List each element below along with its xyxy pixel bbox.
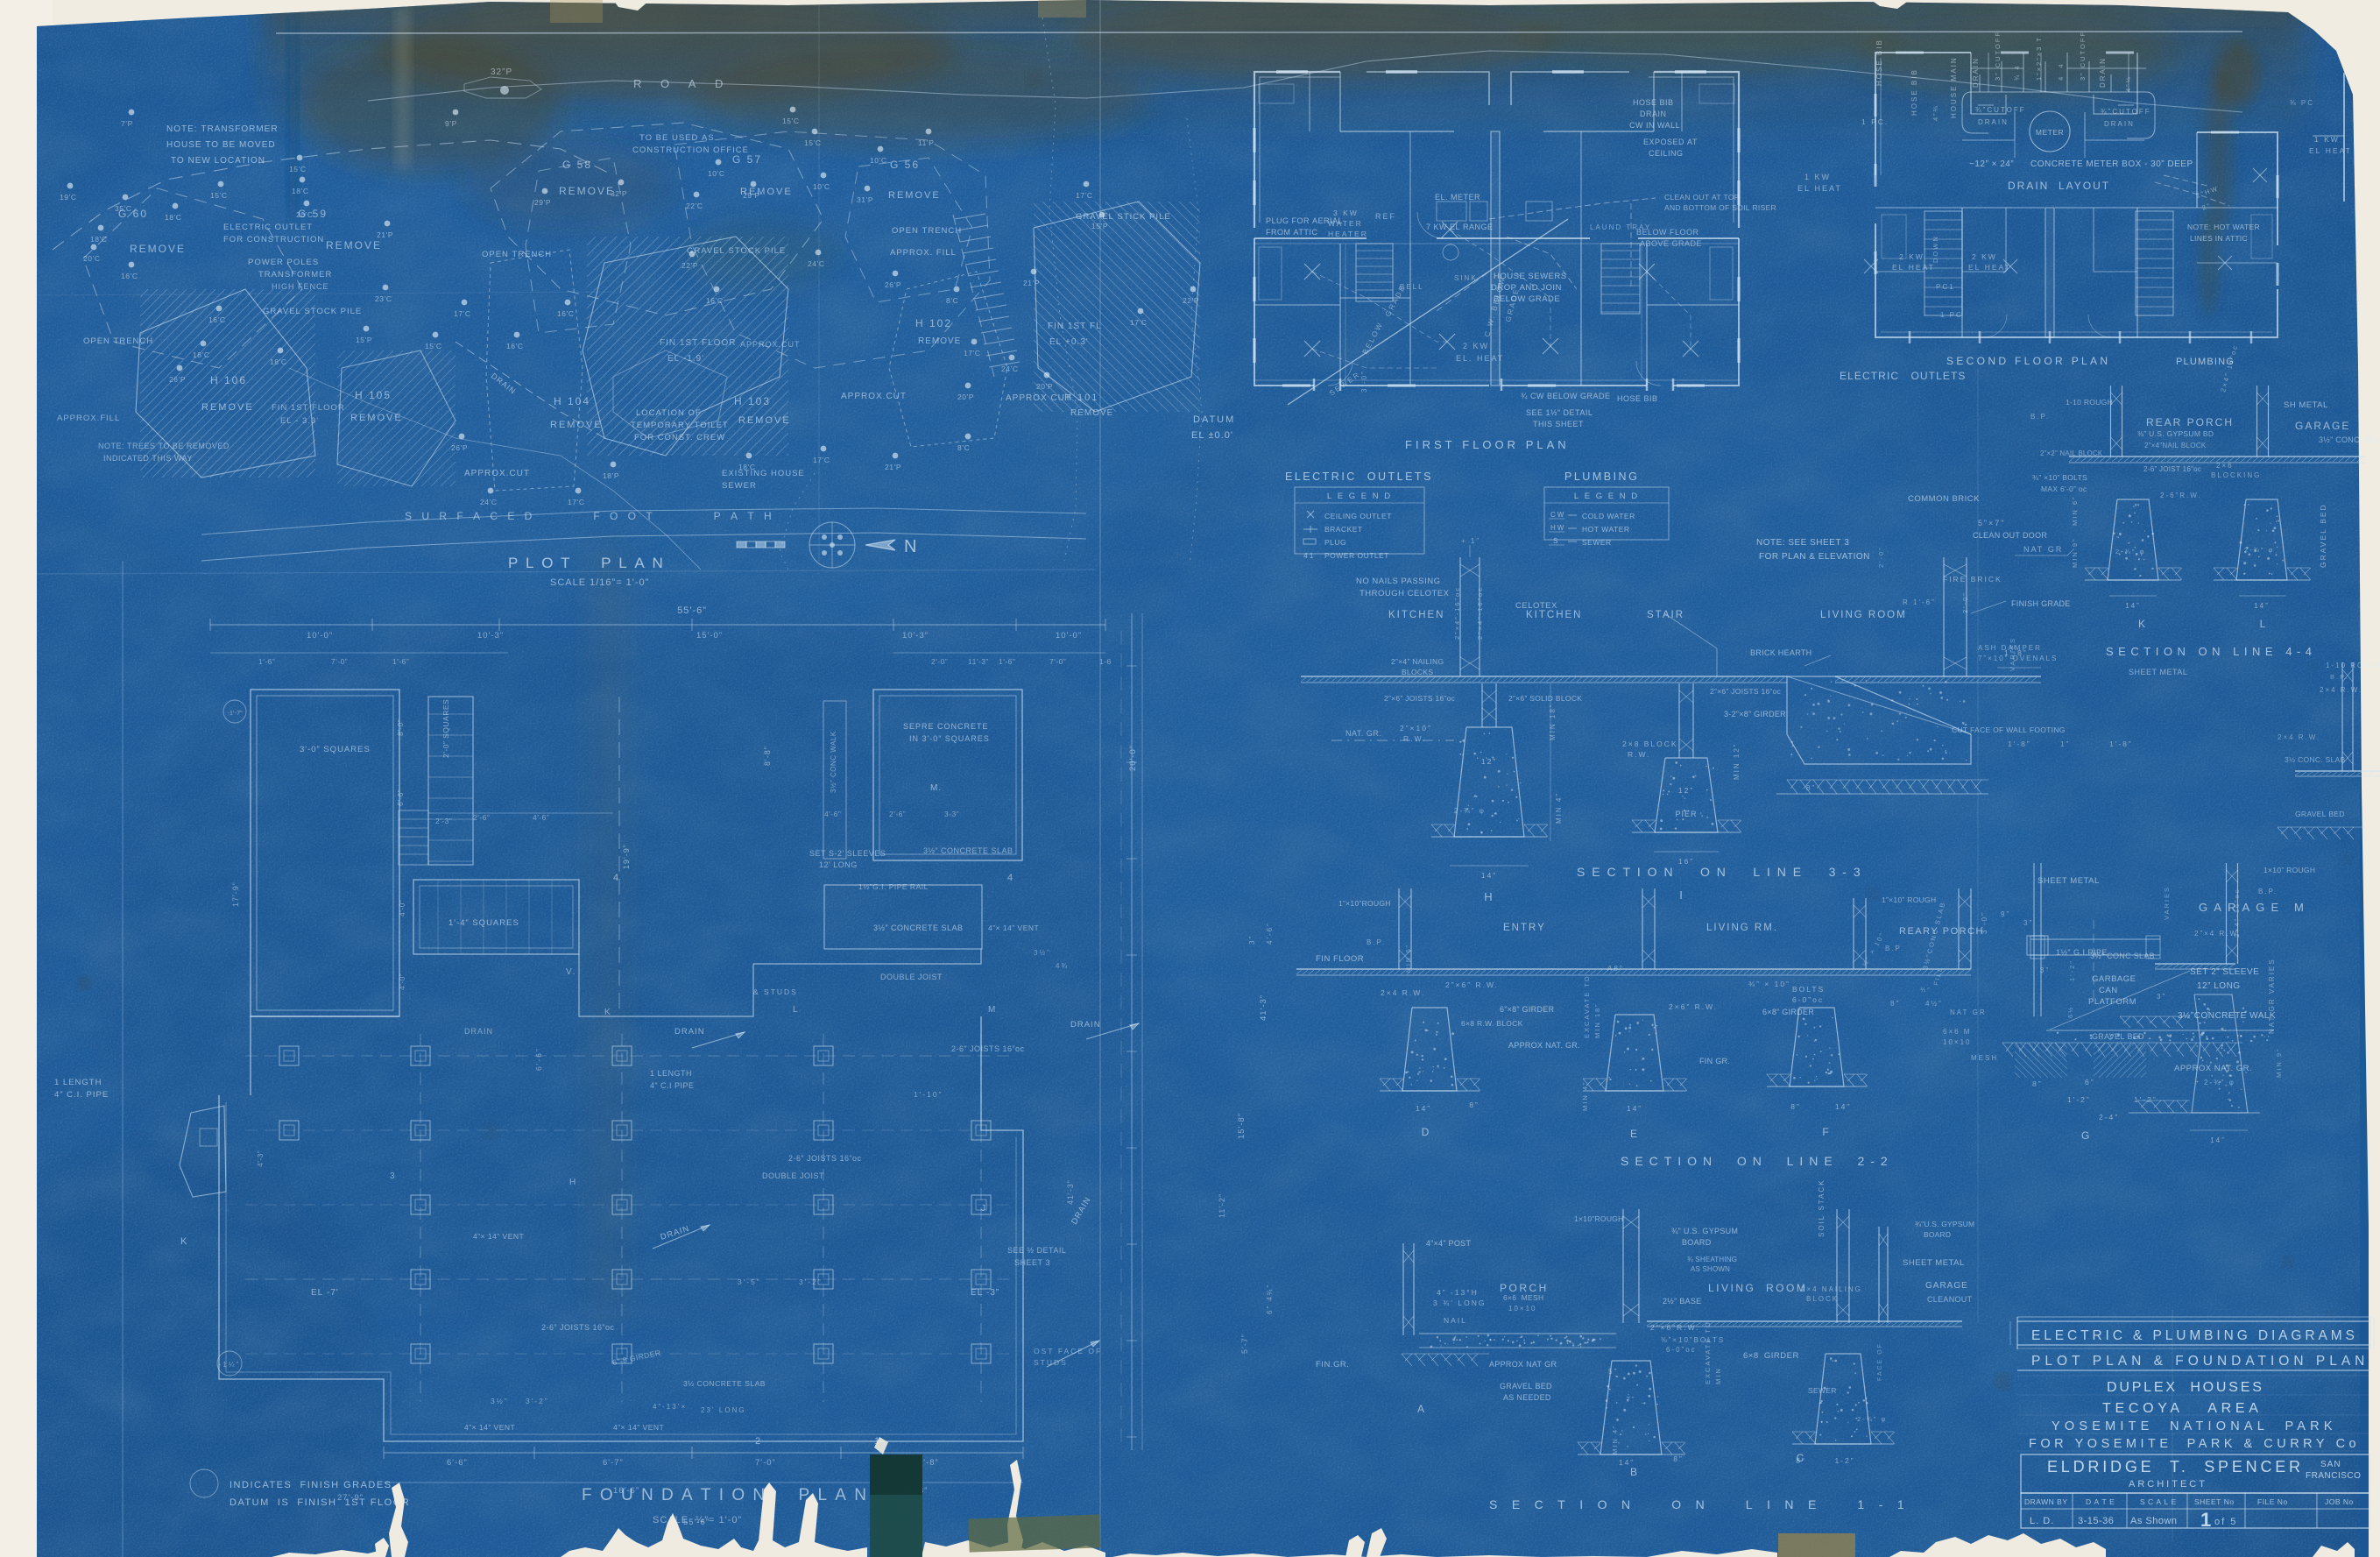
svg-text:3'-0”: 3'-0” [1360,370,1368,393]
svg-text:6-0”oc: 6-0”oc [1666,1346,1697,1354]
svg-text:2-6” JOISTS 16”oc: 2-6” JOISTS 16”oc [788,1154,862,1163]
svg-text:19'-9”: 19'-9” [622,844,631,869]
svg-text:14”: 14” [1416,1104,1431,1113]
svg-text:1 LENGTH: 1 LENGTH [54,1078,102,1087]
svg-text:BRACKET: BRACKET [1324,525,1363,534]
svg-text:ELECTRIC OUTLETS: ELECTRIC OUTLETS [1840,370,1967,382]
svg-text:41'-3”: 41'-3” [1066,1179,1075,1205]
svg-text:3½” CONCRETE SLAB: 3½” CONCRETE SLAB [873,924,964,932]
svg-text:P L O T P L A N: P L O T P L A N [508,555,665,571]
svg-text:S C A L E: S C A L E [2140,1497,2177,1506]
svg-text:15’C: 15’C [289,165,306,173]
svg-text:20’P: 20’P [1036,382,1053,391]
svg-text:S E C T I O N O N L I: S E C T I O N O N L I N E 2 - 2 [1621,1154,1889,1168]
svg-text:COLD WATER: COLD WATER [1582,512,1635,520]
svg-text:BOLTS: BOLTS [1792,985,1825,994]
svg-text:15'-8”: 15'-8” [1237,1113,1246,1139]
svg-text:17’C: 17’C [813,456,830,464]
svg-text:FINISH GRADE: FINISH GRADE [2011,599,2071,608]
svg-text:3'-5”: 3'-5” [738,1277,761,1286]
svg-text:REMOVE: REMOVE [888,190,941,201]
svg-text:23’ LONG: 23’ LONG [701,1406,746,1414]
svg-text:G A R A G E M: G A R A G E M [2199,901,2306,914]
svg-text:2×6: 2×6 [2216,462,2234,470]
svg-text:PORCH: PORCH [1500,1282,1549,1294]
svg-text:SHEET METAL: SHEET METAL [1903,1258,1965,1268]
svg-text:41: 41 [1303,551,1315,560]
svg-text:F I R S T F L O O R P L A: F I R S T F L O O R P L A N [1405,438,1566,451]
svg-text:2 KW: 2 KW [1463,342,1489,350]
svg-text:3½ CONC. SLAB: 3½ CONC. SLAB [2285,755,2346,764]
svg-text:2×8 BLOCK: 2×8 BLOCK [1622,740,1678,748]
svg-text:1 PC.: 1 PC. [1861,117,1889,126]
svg-text:6-0”oc: 6-0”oc [1792,995,1824,1004]
svg-text:CONSTRUCTION OFFICE: CONSTRUCTION OFFICE [632,145,749,155]
svg-text:41'-3”: 41'-3” [1259,994,1268,1021]
svg-text:JOB No: JOB No [2325,1497,2354,1506]
svg-text:¾ PC: ¾ PC [2290,99,2314,107]
svg-text:FRANCISCO: FRANCISCO [2306,1471,2361,1481]
svg-text:15’P: 15’P [356,336,372,344]
svg-text:18’C: 18’C [193,350,209,359]
svg-text:SINK: SINK [1454,274,1478,282]
svg-text:GARBAGE: GARBAGE [2092,974,2136,984]
svg-text:APPROX.FILL: APPROX.FILL [57,414,120,423]
svg-text:7'-0”: 7'-0” [1049,657,1066,666]
svg-text:29’P: 29’P [534,198,551,207]
svg-text:1'-8”: 1'-8” [2004,648,2028,657]
svg-text:EL. METER: EL. METER [1435,193,1480,202]
svg-text:APPROX. FILL: APPROX. FILL [890,248,957,258]
svg-text:6'-6”: 6'-6” [447,1458,468,1468]
svg-text:6'-6”: 6'-6” [396,789,405,806]
svg-text:SEPRE CONCRETE: SEPRE CONCRETE [903,722,989,731]
svg-text:1'-2”: 1'-2” [2068,959,2076,981]
svg-text:A8°: A8° [1607,965,1624,973]
svg-text:14”: 14” [1835,1102,1851,1111]
svg-text:4”×4” POST: 4”×4” POST [1426,1239,1471,1248]
svg-text:S E C T I O N O N L I N E: S E C T I O N O N L I N E 4 - 4 [2106,645,2313,658]
svg-text:10’C: 10’C [708,169,724,178]
svg-text:M.: M. [930,783,942,793]
svg-text:2”×6”R.W.: 2”×6”R.W. [1650,1323,1700,1332]
svg-text:BLOCK: BLOCK [1806,1295,1839,1303]
svg-text:10'-3”: 10'-3” [902,631,929,640]
svg-text:26’P: 26’P [885,280,901,289]
svg-text:MIN 6”: MIN 6” [2071,496,2079,527]
svg-text:1×10”ROUGH: 1×10”ROUGH [1574,1214,1624,1223]
svg-text:H 102: H 102 [915,317,952,329]
svg-text:NO NAILS PASSING: NO NAILS PASSING [1356,577,1441,586]
svg-text:GRAVEL BED: GRAVEL BED [2319,503,2327,568]
svg-text:DRAIN: DRAIN [1972,57,1980,88]
svg-text:2'-6”: 2'-6” [473,813,490,822]
svg-text:19’C: 19’C [60,193,76,202]
svg-text:EL -3”: EL -3” [971,1288,999,1298]
svg-text:FACE OF: FACE OF [1877,1342,1883,1381]
svg-text:3 ¾’ LONG: 3 ¾’ LONG [1433,1299,1487,1307]
svg-text:DRAIN: DRAIN [2104,120,2135,128]
svg-text:EL - 3.3': EL - 3.3' [280,416,319,426]
svg-text:EL ±0.0': EL ±0.0' [1191,430,1233,441]
svg-text:EXPOSED AT: EXPOSED AT [1643,138,1698,146]
svg-text:F O U N D A T I O N P L A: F O U N D A T I O N P L A N [582,1486,868,1504]
svg-text:10'-0”: 10'-0” [307,631,333,640]
svg-text:1”×2”×3 T: 1”×2”×3 T [2035,36,2043,81]
svg-text:15’C: 15’C [425,342,441,350]
svg-text:6×6 MESH: 6×6 MESH [1503,1293,1543,1302]
svg-text:2×4 R.W.: 2×4 R.W. [2278,733,2320,741]
svg-text:2”×6” SOLID BLOCK: 2”×6” SOLID BLOCK [1508,694,1582,703]
svg-text:R O A D: R O A D [633,77,731,90]
svg-text:8’C: 8’C [946,296,958,305]
svg-text:EL HEAT: EL HEAT [1892,263,1935,272]
svg-text:12”: 12” [1678,786,1694,795]
svg-text:24’C: 24’C [480,498,497,506]
svg-text:FROM ATTIC: FROM ATTIC [1266,228,1317,237]
svg-text:D A T E: D A T E [2086,1497,2115,1506]
svg-text:PLOT PLAN & FOUNDATION PLAN: PLOT PLAN & FOUNDATION PLAN [2031,1354,2369,1369]
svg-text:SET S-2' SLEEVES: SET S-2' SLEEVES [809,849,886,858]
svg-text:7'-0”: 7'-0” [755,1458,776,1468]
svg-text:3½” CONC. SLAB: 3½” CONC. SLAB [2319,435,2380,444]
svg-text:GRAVEL STOCK PILE: GRAVEL STOCK PILE [687,246,786,256]
svg-text:GARAGE: GARAGE [1925,1281,1968,1291]
svg-text:3½” CONC WALK: 3½” CONC WALK [830,731,837,793]
svg-text:12”: 12” [1481,757,1497,766]
svg-text:AND BOTTOM OF SOIL RISER: AND BOTTOM OF SOIL RISER [1664,203,1776,212]
svg-text:MIN 4”: MIN 4” [1555,792,1563,824]
svg-text:CAN: CAN [2099,986,2118,995]
svg-text:3½”: 3½” [491,1397,509,1405]
svg-text:8'-8”: 8'-8” [763,746,772,766]
svg-text:2”×6” JOISTS 16”oc: 2”×6” JOISTS 16”oc [1710,687,1782,696]
svg-text:APPROX NAT. GR.: APPROX NAT. GR. [2174,1064,2252,1073]
svg-text:REMOVE: REMOVE [350,413,403,423]
svg-text:LOCATION OF: LOCATION OF [636,408,702,418]
svg-text:DRAWN BY: DRAWN BY [2024,1497,2068,1506]
svg-text:15'-0”: 15'-0” [696,631,723,640]
svg-text:ELECTRIC & PLUMBING DIAGRAMS: ELECTRIC & PLUMBING DIAGRAMS [2031,1328,2358,1343]
svg-text:of 5: of 5 [2214,1517,2237,1527]
svg-text:MIN: MIN [1714,1367,1722,1384]
svg-text:LIVING RM.: LIVING RM. [1706,923,1778,933]
svg-text:2'-0” SQUARES: 2'-0” SQUARES [441,699,450,758]
svg-text:2 KW: 2 KW [1899,252,1924,261]
svg-text:DRAIN: DRAIN [2099,57,2107,88]
svg-text:GRAVEL BED: GRAVEL BED [2092,1032,2144,1041]
svg-text:7”: 7” [1626,1396,1635,1404]
svg-text:CLEANOUT: CLEANOUT [1927,1295,1973,1304]
svg-text:PLUMBING: PLUMBING [1564,471,1639,483]
svg-text:B: B [1630,1466,1639,1478]
svg-text:32”P: 32”P [491,67,512,77]
svg-text:6” 4¾”: 6” 4¾” [1266,1284,1274,1314]
svg-text:HOUSE MAIN: HOUSE MAIN [1950,56,1958,118]
svg-text:SH METAL: SH METAL [2284,400,2328,410]
svg-text:MAX 6'-0” oc: MAX 6'-0” oc [2041,485,2087,493]
svg-text:SEE 1½” DETAIL: SEE 1½” DETAIL [1526,408,1593,417]
svg-text:DRAIN: DRAIN [1978,118,2009,126]
svg-text:G 57: G 57 [732,153,762,166]
svg-text:SCALE ¼”= 1'-0”: SCALE ¼”= 1'-0” [653,1515,742,1525]
svg-text:APPROX.CUT: APPROX.CUT [841,392,907,401]
svg-text:REMOVE: REMOVE [559,185,615,197]
svg-text:4”× 14” VENT: 4”× 14” VENT [473,1232,524,1241]
svg-text:4” -13°H: 4” -13°H [1437,1288,1479,1297]
svg-text:14”: 14” [1481,871,1497,880]
svg-text:2”×4 R.W.: 2”×4 R.W. [2194,930,2242,938]
svg-text:C: C [1797,1452,1806,1464]
svg-text:LINES IN ATTIC: LINES IN ATTIC [2190,234,2248,243]
svg-text:H 104: H 104 [554,395,590,407]
svg-text:H 106: H 106 [210,374,247,386]
svg-text:6”×8” GIRDER: 6”×8” GIRDER [1500,1005,1555,1014]
svg-text:EL HEAT: EL HEAT [1797,184,1842,193]
svg-text:GRAVEL BED: GRAVEL BED [2295,810,2345,818]
svg-text:LIVING ROOM: LIVING ROOM [1708,1282,1807,1294]
svg-text:REF: REF [1375,212,1396,221]
svg-text:18’C: 18’C [270,357,286,366]
svg-text:NAT GR VARIES: NAT GR VARIES [2268,958,2276,1034]
svg-text:⅜” U.S. GYPSUM BD: ⅜” U.S. GYPSUM BD [2137,429,2214,438]
svg-text:17’C: 17’C [1076,191,1092,200]
svg-text:1-2”: 1-2” [1834,1456,1854,1465]
svg-text:2-¾” φ: 2-¾” φ [2244,546,2274,554]
svg-text:2”×4”-16”oc: 2”×4”-16”oc [1476,586,1484,640]
svg-text:21’P: 21’P [885,463,901,471]
svg-text:17'-9”: 17'-9” [231,881,240,907]
svg-text:17’C: 17’C [1130,318,1147,327]
svg-text:MIN 9”: MIN 9” [2071,538,2079,569]
svg-text:SAN: SAN [2320,1460,2341,1469]
svg-text:REMOVE: REMOVE [201,402,254,413]
svg-text:EL. HEAT: EL. HEAT [1456,354,1504,363]
svg-text:3” CUTOFF: 3” CUTOFF [1994,31,2002,81]
svg-text:G 58: G 58 [562,159,592,171]
svg-text:21’P: 21’P [377,230,393,239]
svg-text:2-¾” φ: 2-¾” φ [2204,1079,2235,1086]
svg-text:4: 4 [1007,873,1014,883]
svg-text:14”: 14” [2125,602,2141,610]
svg-text:¾”: ¾” [1920,986,1932,994]
svg-text:EXCAVATE TO: EXCAVATE TO [1704,1320,1712,1384]
svg-text:+ 1”: + 1” [1461,537,1480,545]
svg-text:1'-10”: 1'-10” [914,1090,943,1099]
svg-text:APPROX NAT GR: APPROX NAT GR [1489,1360,1557,1369]
svg-text:4: 4 [613,873,620,883]
svg-text:H: H [569,1178,577,1187]
svg-text:DATUM IS FINISH 1ST FLOOR: DATUM IS FINISH 1ST FLOOR [230,1497,410,1508]
svg-text:8”: 8” [1673,1454,1684,1463]
svg-text:9”: 9” [2001,910,2010,918]
svg-text:1½”G.I. PIPE RAIL: 1½”G.I. PIPE RAIL [858,882,929,891]
svg-text:HOSE BIB: HOSE BIB [1617,394,1658,403]
svg-text:B.P.: B.P. [2258,888,2278,895]
svg-text:12' LONG: 12' LONG [819,860,858,869]
svg-text:3”: 3” [1248,935,1256,945]
svg-text:10'-0”: 10'-0” [1056,631,1082,640]
svg-text:THROUGH CELOTEX: THROUGH CELOTEX [1359,589,1450,598]
svg-text:MIN 12”: MIN 12” [1733,743,1741,780]
svg-text:R 1'-6”: R 1'-6” [1903,598,1936,606]
svg-text:4'-3”: 4'-3” [256,1150,265,1167]
svg-text:TRANSFORMER: TRANSFORMER [258,270,332,280]
svg-text:5”: 5” [1608,1368,1618,1376]
svg-text:G: G [2081,1129,2091,1142]
svg-text:1-10 ROUGH: 1-10 ROUGH [2066,398,2113,407]
svg-text:B.P.: B.P. [1367,938,1386,946]
svg-text:S E C T I O N O N L I N: S E C T I O N O N L I N E 1 - 1 [1489,1497,1910,1511]
svg-text:V.: V. [566,967,577,977]
svg-text:1'-8”: 1'-8” [2109,740,2133,748]
svg-text:EL -1.9': EL -1.9' [667,354,704,364]
svg-text:18’P: 18’P [603,471,619,480]
svg-text:6×6 M: 6×6 M [1943,1028,1971,1036]
svg-text:4'-6”: 4'-6” [1266,922,1274,945]
svg-text:4”⅔: 4”⅔ [1932,104,1939,121]
svg-text:REMOVE: REMOVE [918,336,961,346]
svg-text:SHEET METAL: SHEET METAL [2129,668,2187,676]
svg-text:WATER: WATER [1328,219,1363,228]
svg-text:BLOCKING: BLOCKING [2211,471,2261,479]
svg-text:3-3”: 3-3” [944,810,959,818]
svg-text:4”-13’×: 4”-13’× [653,1403,687,1411]
svg-text:FOR CONSTRUCTION: FOR CONSTRUCTION [223,235,324,244]
svg-text:3'-0” SQUARES: 3'-0” SQUARES [300,745,371,754]
svg-text:18’C: 18’C [738,463,755,471]
svg-text:BRICK HEARTH: BRICK HEARTH [1750,648,1811,657]
svg-text:DUPLEX HOUSES: DUPLEX HOUSES [2107,1380,2264,1395]
svg-text:CEILING: CEILING [1649,149,1684,158]
svg-text:YOSEMITE NATIONAL PARK: YOSEMITE NATIONAL PARK [2052,1419,2337,1433]
svg-text:4”× 14” VENT: 4”× 14” VENT [464,1423,515,1432]
svg-text:ARCHITECT: ARCHITECT [2129,1479,2207,1490]
svg-text:2×4 R.W.: 2×4 R.W. [1381,988,1425,997]
svg-text:8”: 8” [1790,1102,1801,1111]
svg-text:OST FACE OF: OST FACE OF [1034,1347,1102,1355]
svg-text:NOTE: TREES TO BE REMOVED: NOTE: TREES TO BE REMOVED [98,442,230,450]
svg-text:3½”: 3½” [1034,949,1051,957]
svg-text:SHEET METAL: SHEET METAL [2037,876,2100,886]
svg-text:3½” CONCRETE SLAB: 3½” CONCRETE SLAB [923,846,1013,855]
svg-text:OPEN TRENCH: OPEN TRENCH [482,250,552,259]
svg-text:TEMPORARY TOILET: TEMPORARY TOILET [631,421,729,430]
svg-text:TECOYA AREA: TECOYA AREA [2102,1401,2263,1416]
svg-text:L E G E N D: L E G E N D [1574,492,1639,501]
svg-text:G 56: G 56 [890,159,920,171]
svg-text:⅜”×10”BOLTS: ⅜”×10”BOLTS [1661,1336,1725,1344]
svg-text:11'-2”: 11'-2” [1218,1193,1226,1218]
svg-text:EL HEAT: EL HEAT [2309,146,2352,155]
svg-text:16’C: 16’C [506,342,523,350]
svg-text:NAT GR: NAT GR [2023,545,2063,554]
svg-text:1”: 1” [2060,740,2070,748]
svg-text:2-¾” φ: 2-¾” φ [1857,1415,1887,1423]
svg-text:16’C: 16’C [121,272,138,280]
svg-text:I: I [1679,888,1684,902]
svg-text:VARIES: VARIES [2163,886,2171,920]
svg-text:14”: 14” [1627,1104,1642,1113]
svg-text:SEE ½ DETAIL: SEE ½ DETAIL [1007,1246,1066,1255]
svg-text:FIN 1ST FLOOR: FIN 1ST FLOOR [272,403,345,413]
svg-text:18’C: 18’C [292,187,308,195]
svg-text:3'-2”: 3'-2” [526,1397,549,1405]
svg-text:1'-8”: 1'-8” [2008,740,2031,748]
svg-text:1'-4” SQUARES: 1'-4” SQUARES [448,918,519,928]
svg-text:EL -7': EL -7' [311,1288,339,1298]
svg-text:S E C T I O N O N L I: S E C T I O N O N L I N E 3 - 3 [1577,865,1862,879]
svg-text:S E C O N D F L O O R P L: S E C O N D F L O O R P L A N [1946,355,2108,367]
svg-text:14”: 14” [2254,602,2270,610]
svg-text:BOARD: BOARD [1682,1238,1712,1247]
svg-text:2 KW: 2 KW [1972,252,1997,261]
svg-text:4” C.I. PIPE: 4” C.I. PIPE [54,1090,109,1100]
svg-text:F: F [1822,1126,1830,1138]
svg-text:S: S [1553,537,1559,545]
svg-text:6×8 GIRDER: 6×8 GIRDER [1743,1351,1799,1361]
svg-text:DRAIN: DRAIN [1640,110,1667,118]
svg-text:10'-3”: 10'-3” [477,631,504,640]
svg-text:11'-3”: 11'-3” [968,657,989,666]
svg-text:EL HEAT: EL HEAT [1968,263,2011,272]
svg-text:DOUBLE JOIST: DOUBLE JOIST [762,1171,824,1180]
svg-text:8’C: 8’C [957,443,970,452]
svg-text:4”× 14” VENT: 4”× 14” VENT [988,924,1039,932]
svg-text:24’C: 24’C [808,259,824,268]
svg-text:CUT FACE OF WALL FOOTING: CUT FACE OF WALL FOOTING [1952,725,2066,734]
svg-text:BOARD: BOARD [1924,1230,1951,1239]
svg-text:1-6: 1-6 [1099,657,1112,666]
svg-text:2×4 NAILING: 2×4 NAILING [1801,1285,1862,1293]
svg-text:DATUM: DATUM [1193,414,1235,425]
svg-text:4'-6”: 4'-6” [824,810,841,818]
svg-text:22’P: 22’P [1183,296,1199,305]
svg-text:2-6” JOISTS 16”oc: 2-6” JOISTS 16”oc [541,1323,615,1332]
svg-text:16’C: 16’C [557,309,574,318]
svg-text:R.W.: R.W. [1403,734,1426,743]
svg-text:FIN GR.: FIN GR. [1699,1057,1730,1065]
svg-text:18’C: 18’C [165,213,181,222]
svg-text:1 LENGTH: 1 LENGTH [650,1069,692,1078]
svg-text:M: M [988,1005,997,1015]
svg-text:2”×2” NAIL BLOCK: 2”×2” NAIL BLOCK [2040,449,2103,457]
svg-text:35’C: 35’C [115,204,131,213]
svg-text:4 4: 4 4 [2057,62,2065,81]
svg-text:SET 2” SLEEVE: SET 2” SLEEVE [2190,967,2259,977]
svg-text:REMOVE: REMOVE [550,420,603,430]
svg-text:~12” × 24”: ~12” × 24” [1969,159,2014,169]
svg-text:1'-6”: 1'-6” [258,657,275,666]
svg-text:OPEN TRENCH: OPEN TRENCH [83,336,153,346]
svg-text:CLEAN OUT DOOR: CLEAN OUT DOOR [1973,531,2047,540]
svg-text:E: E [1630,1128,1639,1140]
svg-text:OPEN TRENCH: OPEN TRENCH [892,226,962,236]
svg-text:METER: METER [2036,128,2064,137]
svg-text:BLOCKS: BLOCKS [1402,668,1433,676]
svg-text:2”×4”-16”oc: 2”×4”-16”oc [1453,586,1461,640]
svg-text:1 PC: 1 PC [1940,311,1963,319]
svg-text:HW: HW [1550,524,1565,532]
svg-text:3-15-36: 3-15-36 [2078,1516,2114,1526]
svg-text:NAIL: NAIL [1444,1316,1467,1325]
svg-text:6”: 6” [2085,1078,2095,1086]
svg-text:KITCHEN: KITCHEN [1388,610,1444,620]
svg-text:CLEAN OUT AT TOP: CLEAN OUT AT TOP [1664,193,1740,202]
svg-text:HOUSE TO BE MOVED: HOUSE TO BE MOVED [166,140,276,150]
svg-text:4'-0”: 4'-0” [398,973,406,990]
svg-text:1×10” ROUGH: 1×10” ROUGH [2263,866,2315,874]
